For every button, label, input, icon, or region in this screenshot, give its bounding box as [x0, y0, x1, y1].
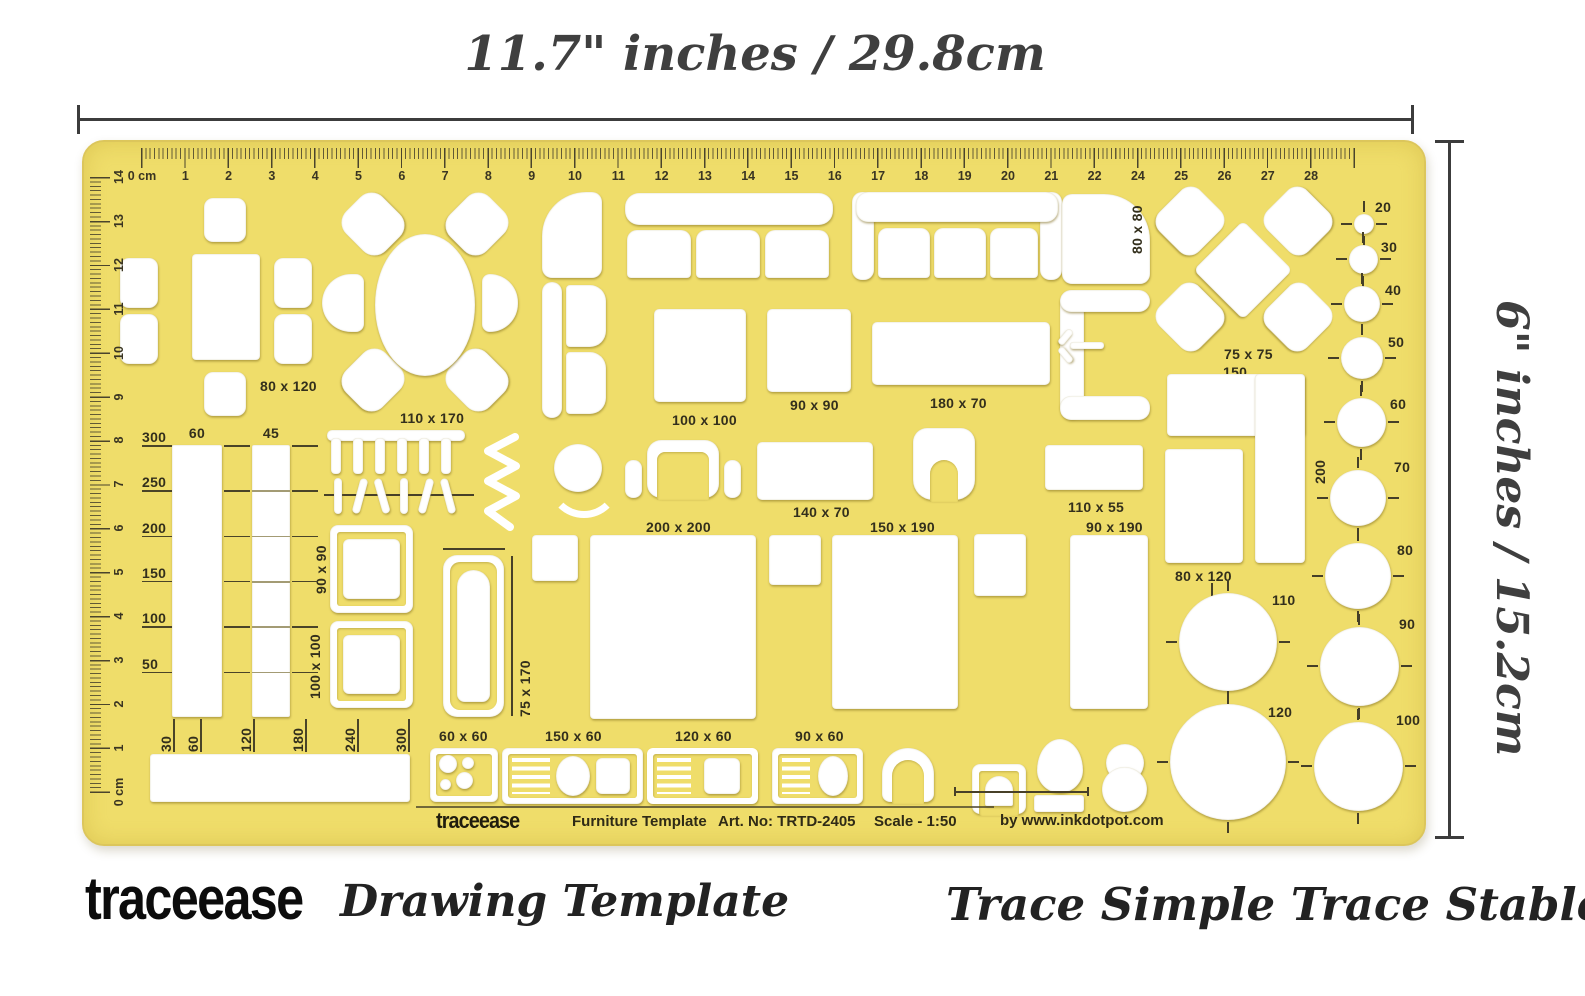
footer-credit-url: by www.inkdotpot.com: [1000, 812, 1164, 829]
ruler-top-label: 13: [698, 169, 712, 183]
burner-cutout: [440, 779, 451, 790]
square-table-cutout: [767, 309, 851, 392]
chair-armrest-cutout: [625, 460, 642, 498]
corner-sofa-cutout: [542, 192, 602, 278]
scale-width-label: 45: [263, 425, 279, 441]
hanger-prong-cutout: [375, 438, 385, 474]
circle-cutout: [1337, 398, 1386, 447]
circle-tick: [1357, 530, 1359, 541]
scale-tick: [142, 581, 172, 583]
scale-side-label: 250: [142, 474, 166, 490]
stove-size-label: 60 x 60: [439, 728, 488, 744]
width-dimension-cap-left: [77, 105, 80, 134]
toilet-u-notch: [930, 460, 958, 502]
scale-side-label: 200: [142, 520, 166, 536]
ruler-top-label: 8: [485, 169, 492, 183]
width-dimension-cap-right: [1411, 105, 1414, 134]
circle-cutout: [1179, 593, 1277, 691]
ruler-left-label: 4: [112, 613, 126, 620]
square-table-size-label: 100 x 100: [672, 412, 737, 428]
circle-size-label: 80: [1397, 542, 1413, 558]
tick-mark: [1087, 787, 1089, 796]
circle-tick: [1382, 303, 1393, 305]
ruler-top-label: 20: [1001, 169, 1015, 183]
left-ruler-ticks: [90, 177, 110, 793]
scale-tick: [224, 672, 250, 674]
sofa-seat-cutout: [990, 228, 1038, 278]
tick-mark: [954, 787, 956, 796]
nightstand-cutout: [769, 535, 821, 585]
dresser-cutout: [1045, 445, 1143, 490]
circle-tick: [1227, 691, 1229, 702]
dining-table-cutout: [192, 254, 260, 360]
loveseat-seat-cutout: [566, 285, 606, 347]
circle-cutout: [1341, 337, 1383, 379]
ruler-left-label: 6: [112, 525, 126, 532]
dresser-size-label: 110 x 55: [1068, 499, 1124, 515]
scale-bottom-label: 240: [342, 728, 358, 752]
scale-bar-segment-line: [252, 581, 290, 583]
scale-bottom-label: 60: [185, 736, 201, 752]
scale-bottom-label: 300: [393, 728, 409, 752]
ruler-left-label: 12: [112, 258, 126, 272]
chair-armrest-cutout: [724, 460, 741, 498]
scale-tick: [200, 719, 202, 752]
bed-cutout: [1070, 535, 1148, 709]
scale-bar-cutout: [150, 754, 410, 802]
dimension-line: [511, 556, 513, 716]
scale-side-label: 150: [142, 565, 166, 581]
oval-table-size-label: 110 x 170: [400, 410, 464, 426]
ruler-left-label: 10: [112, 346, 126, 360]
circle-size-label: 70: [1394, 459, 1410, 475]
circle-tick: [1227, 580, 1229, 591]
dining-chair-cutout: [204, 372, 246, 416]
circle-cutout: [1354, 214, 1374, 234]
circle-tick: [1157, 761, 1168, 763]
ruler-top-label: 4: [312, 169, 319, 183]
nightstand-cutout: [974, 534, 1026, 596]
wardrobe-size-label: 90 x 90: [313, 545, 329, 594]
sofa-seat-cutout: [934, 228, 986, 278]
scale-tick: [292, 672, 318, 674]
kitchen-size-label: 80 x 120: [1175, 568, 1232, 584]
ruler-top-label: 6: [398, 169, 405, 183]
scale-bar-cutout: [172, 445, 222, 717]
dining-table-size-label: 80 x 120: [260, 378, 317, 394]
ruler-left-label: 2: [112, 700, 126, 707]
scale-tick: [292, 536, 318, 538]
drainboard-cutout: [782, 758, 810, 794]
sofa-seat-cutout: [627, 230, 691, 278]
circle-tick: [1363, 201, 1365, 212]
ruler-left-label: 14: [112, 170, 126, 184]
circle-tick: [1288, 761, 1299, 763]
hanger-hook-cutout: [373, 478, 391, 515]
desk-size-label: 140 x 70: [793, 504, 850, 520]
zigzag-cutout: [479, 432, 523, 534]
circle-tick: [1360, 385, 1362, 396]
product-photo-scene: 11.7" inches / 29.8cm 6" inches / 15.2cm…: [0, 0, 1585, 996]
hanger-prong-cutout: [397, 438, 407, 474]
circle-size-label: 40: [1385, 282, 1401, 298]
circle-size-label: 50: [1388, 334, 1404, 350]
dining-chair-cutout: [274, 258, 312, 308]
circle-cutout: [1170, 704, 1286, 820]
scale-bottom-label: 120: [238, 728, 254, 752]
sofa-seat-cutout: [765, 230, 829, 278]
hanger-hook-cutout: [400, 478, 408, 514]
depth-200-label: 200: [1312, 460, 1328, 484]
ruler-left-label: 1: [112, 744, 126, 751]
hanger-hook-cutout: [334, 478, 342, 514]
sink-bowl-cutout: [818, 756, 848, 796]
circle-tick: [1361, 324, 1363, 335]
brand-logo: traceease: [85, 864, 302, 933]
ruler-top-label: 0 cm: [128, 169, 157, 183]
dining-chair-cutout: [204, 198, 246, 242]
footer-scale: Scale - 1:50: [874, 813, 957, 830]
sink-arc-cutout: [548, 448, 620, 518]
ruler-top-label: 18: [914, 169, 928, 183]
wardrobe-size-label: 100 x 100: [307, 634, 323, 699]
bed-cutout: [832, 535, 958, 709]
dimension-line: [954, 791, 1089, 793]
bed-size-label: 150 x 190: [870, 519, 935, 535]
ruler-left-label: 0 cm: [112, 777, 126, 806]
circle-size-label: 90: [1399, 616, 1415, 632]
burner-cutout: [439, 755, 457, 773]
ruler-top-label: 5: [355, 169, 362, 183]
toilet-bowl-cutout: [1102, 767, 1147, 812]
rect-table-cutout: [872, 322, 1050, 385]
sink-size-label: 90 x 60: [795, 728, 844, 744]
scale-tick: [292, 445, 318, 447]
ruler-top-label: 9: [528, 169, 535, 183]
circle-tick: [1341, 223, 1352, 225]
ruler-top-label: 10: [568, 169, 582, 183]
bed-cutout: [590, 535, 756, 719]
dimension-line: [443, 548, 505, 550]
bed-size-label: 90 x 190: [1086, 519, 1143, 535]
plant-symbol-cutout: [1070, 342, 1104, 349]
circle-tick: [1405, 765, 1416, 767]
ruler-top-label: 28: [1304, 169, 1318, 183]
hanger-hook-cutout: [351, 478, 368, 515]
scale-tick: [142, 445, 172, 447]
circle-tick: [1166, 641, 1177, 643]
circle-tick: [1360, 449, 1362, 460]
ruler-left-label: 7: [112, 481, 126, 488]
ruler-left-label: 5: [112, 569, 126, 576]
shelf-cutout: [1034, 795, 1084, 812]
scale-tick: [292, 581, 318, 583]
square-table-size-label: 90 x 90: [790, 397, 839, 413]
ruler-left-label: 8: [112, 437, 126, 444]
footer-art-number: Art. No: TRTD-2405: [718, 813, 856, 830]
circle-size-label: 100: [1396, 712, 1420, 728]
scale-side-label: 50: [142, 656, 158, 672]
hanger-prong-cutout: [353, 438, 363, 474]
circle-cutout: [1349, 245, 1378, 274]
circle-tick: [1376, 223, 1387, 225]
circle-tick: [1361, 273, 1363, 284]
bathtub-size-label: 75 x 170: [517, 660, 533, 717]
drainboard-cutout: [657, 758, 691, 794]
circle-tick: [1357, 813, 1359, 824]
footer-brand-logo: traceease: [436, 808, 519, 834]
circle-tick: [1388, 421, 1399, 423]
scale-tick: [224, 626, 250, 628]
circle-tick: [1301, 765, 1312, 767]
oval-table-cutout: [375, 234, 475, 376]
circle-size-label: 20: [1375, 199, 1391, 215]
scale-side-label: 100: [142, 610, 166, 626]
circle-tick: [1388, 497, 1399, 499]
circle-cutout: [1325, 543, 1391, 609]
circle-tick: [1312, 575, 1323, 577]
ruler-top-label: 21: [1044, 169, 1058, 183]
circle-tick: [1401, 665, 1412, 667]
square-table-cutout: [654, 309, 746, 402]
scale-tick: [305, 719, 307, 752]
loveseat-seat-cutout: [566, 352, 606, 414]
circle-tick: [1307, 665, 1318, 667]
furniture-stencil-template: 80 x 120 110 x 170 80 x 80: [82, 140, 1426, 846]
circle-size-label: 120: [1268, 704, 1292, 720]
scale-bar-segment-line: [252, 490, 290, 492]
sink-size-label: 120 x 60: [675, 728, 732, 744]
circle-size-label: 30: [1381, 239, 1397, 255]
sofa-seat-cutout: [878, 228, 930, 278]
brand-subtitle: Drawing Template: [340, 876, 789, 927]
sofa-seat-cutout: [696, 230, 760, 278]
hanger-prong-cutout: [331, 438, 341, 474]
scale-bar-segment-line: [252, 536, 290, 538]
circle-tick: [1380, 258, 1391, 260]
top-ruler-ticks: [141, 148, 1357, 168]
hanger-hook-cutout: [417, 478, 434, 515]
wardrobe-door-cutout: [343, 539, 400, 599]
scale-tick: [253, 719, 255, 752]
scale-tick: [142, 626, 172, 628]
ruler-top-label: 27: [1261, 169, 1275, 183]
circle-size-label: 60: [1390, 396, 1406, 412]
ruler-top-label: 17: [871, 169, 885, 183]
scale-tick: [142, 536, 172, 538]
wardrobe-door-cutout: [343, 635, 400, 694]
scale-bottom-label: 30: [158, 736, 174, 752]
ruler-left-label: 11: [112, 302, 126, 315]
ruler-top-label: 19: [958, 169, 972, 183]
scale-width-label: 60: [189, 425, 205, 441]
ruler-top-label: 16: [828, 169, 842, 183]
scale-tick: [224, 445, 250, 447]
egg-basin-cutout: [1037, 739, 1083, 793]
ruler-top-label: 14: [741, 169, 755, 183]
height-dimension-cap-bottom: [1435, 836, 1464, 839]
ruler-top-label: 11: [612, 169, 625, 183]
circle-tick: [1324, 421, 1335, 423]
scale-tick: [224, 490, 250, 492]
fridge-cutout: [1165, 449, 1243, 563]
bathtub-basin-cutout: [457, 570, 490, 702]
circle-tick: [1357, 457, 1359, 468]
scale-tick: [173, 719, 175, 752]
circle-cutout: [1344, 286, 1380, 322]
scale-tick: [142, 672, 172, 674]
sink-size-label: 150 x 60: [545, 728, 602, 744]
scale-tick: [224, 536, 250, 538]
dining-chair-cutout: [274, 314, 312, 364]
scale-tick: [142, 490, 172, 492]
circle-tick: [1358, 614, 1360, 625]
circle-tick: [1393, 575, 1404, 577]
hanger-hook-cutout: [439, 478, 456, 515]
circle-tick: [1328, 357, 1339, 359]
ruler-top-label: 25: [1174, 169, 1188, 183]
door-arch-notch: [892, 760, 924, 804]
sofa-back-cutout: [625, 193, 833, 225]
scale-bar-segment-line: [252, 672, 290, 674]
circle-tick: [1336, 258, 1347, 260]
circle-cutout: [1330, 470, 1386, 526]
circle-cutout: [1320, 627, 1399, 706]
ruler-left-label: 13: [112, 214, 126, 228]
height-dimension-cap-top: [1435, 140, 1464, 143]
scale-side-label: 300: [142, 429, 166, 445]
circle-tick: [1331, 303, 1342, 305]
height-dimension-line: [1448, 141, 1451, 839]
chaise-arm-cutout: [1060, 396, 1150, 420]
corner-sofa-size-label: 80 x 80: [1129, 205, 1145, 254]
ruler-top-label: 24: [1131, 169, 1145, 183]
scale-tick: [292, 626, 318, 628]
hanger-prong-cutout: [441, 438, 451, 474]
loveseat-back-cutout: [542, 282, 562, 418]
burner-cutout: [462, 757, 474, 769]
circle-tick: [1279, 641, 1290, 643]
chaise-arm-cutout: [1060, 290, 1150, 312]
scale-bottom-label: 180: [290, 728, 306, 752]
drainboard-cutout: [512, 758, 550, 794]
circle-tick: [1362, 232, 1364, 243]
ruler-top-label: 26: [1218, 169, 1232, 183]
sofa-back-cutout: [856, 192, 1058, 222]
tick-mark: [1211, 583, 1213, 596]
circle-tick: [1357, 709, 1359, 720]
oval-chair-cutout: [482, 274, 518, 332]
hanger-prong-cutout: [419, 438, 429, 474]
scale-tick: [292, 490, 318, 492]
bed-size-label: 200 x 200: [646, 519, 711, 535]
scale-tick: [408, 719, 410, 752]
ruler-top-label: 15: [785, 169, 799, 183]
footer-product-name: Furniture Template: [572, 813, 707, 830]
sink-bowl-cutout: [596, 758, 630, 794]
sink-bowl-cutout: [556, 756, 590, 796]
circle-cutout: [1314, 722, 1403, 811]
ruler-top-label: 22: [1088, 169, 1102, 183]
ruler-top-label: 12: [655, 169, 669, 183]
sink-bowl-cutout: [704, 758, 740, 794]
circle-tick: [1227, 822, 1229, 833]
ruler-top-label: 1: [182, 169, 189, 183]
scale-tick: [357, 719, 359, 752]
ruler-left-label: 3: [112, 656, 126, 663]
ruler-left-label: 9: [112, 393, 126, 400]
circle-tick: [1317, 497, 1328, 499]
circle-tick: [1385, 357, 1396, 359]
kitchen-counter-cutout: [1255, 374, 1305, 563]
chair-back-notch: [657, 452, 709, 500]
diamond-table-size-label: 75 x 75: [1224, 346, 1273, 362]
ruler-top-label: 7: [442, 169, 449, 183]
rect-table-size-label: 180 x 70: [930, 395, 987, 411]
scale-tick: [224, 581, 250, 583]
brand-tagline: Trace Simple Trace Stable: [946, 878, 1585, 931]
burner-cutout: [456, 772, 473, 789]
ruler-top-label: 3: [268, 169, 275, 183]
oval-chair-cutout: [322, 274, 364, 332]
width-dimension-label: 11.7" inches / 29.8cm: [430, 26, 1080, 82]
width-dimension-line: [78, 118, 1414, 121]
ruler-top-label: 2: [225, 169, 232, 183]
nightstand-cutout: [532, 535, 578, 581]
circle-size-label: 110: [1272, 592, 1296, 608]
scale-bar-segment-line: [252, 626, 290, 628]
desk-cutout: [757, 442, 873, 500]
height-dimension-label: 6" inches / 15.2cm: [1486, 300, 1537, 756]
